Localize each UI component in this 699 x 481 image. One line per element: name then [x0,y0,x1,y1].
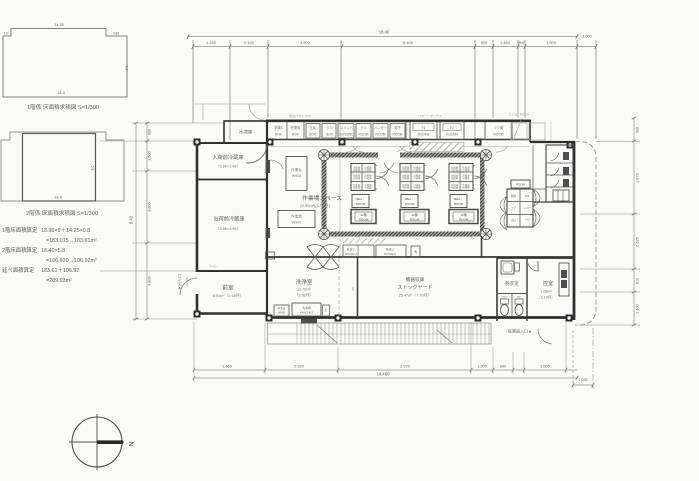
svg-text:C-UNIT ROOM: C-UNIT ROOM [509,113,530,117]
svg-text:1.460: 1.460 [222,364,233,369]
svg-text:1.026: 1.026 [579,378,588,382]
svg-text:1.500: 1.500 [546,40,557,45]
svg-text:1.500: 1.500 [148,151,152,161]
svg-text:ROOM: ROOM [494,133,504,137]
svg-text:冷蔵庫: 冷蔵庫 [462,186,470,190]
svg-text:BOX: BOX [326,133,334,137]
svg-text:900: 900 [636,127,640,133]
svg-text:8.40: 8.40 [129,215,134,224]
svg-text:90: 90 [351,287,355,291]
svg-text:洗浄機: 洗浄機 [302,305,311,310]
svg-text:冷蔵庫: 冷蔵庫 [451,168,459,172]
svg-text:W900: W900 [292,221,301,225]
svg-text:手洗台: 手洗台 [277,307,285,311]
svg-text:1階係 床面積求積図 S=1/300: 1階係 床面積求積図 S=1/300 [27,103,99,111]
svg-text:学服&: 学服& [274,125,283,130]
svg-text:(9.90m²)(3.00坪): (9.90m²)(3.00坪) [300,202,330,208]
svg-text:8.91m²（2.69坪）: 8.91m²（2.69坪） [213,293,244,298]
svg-text:=106.920→106.92m2: =106.920→106.92m2 [46,258,97,265]
svg-text:3.900: 3.900 [300,40,311,45]
svg-text:冷蔵庫: 冷蔵庫 [451,176,459,180]
svg-text:土足: 土足 [309,125,316,130]
svg-text:12番: 12番 [360,212,367,217]
svg-text:12番: 12番 [411,212,418,217]
svg-text:18.99×9＋14.25×0.8: 18.99×9＋14.25×0.8 [41,227,90,234]
svg-text:帽子: 帽子 [394,125,401,130]
svg-text:1.000: 1.000 [582,35,592,39]
svg-text:18.40: 18.40 [379,30,390,35]
svg-text:18.4: 18.4 [57,91,64,95]
svg-text:(W-90): (W-90) [185,277,189,286]
svg-text:シャワ: シャワ [523,206,531,210]
svg-text:900: 900 [148,129,152,135]
svg-text:脱衣室: 脱衣室 [505,280,519,287]
svg-text:25.47m²（7.70坪）: 25.47m²（7.70坪） [399,293,432,298]
svg-text:ストックヤード: ストックヤード [397,285,432,291]
svg-text:2階床面積算定: 2階床面積算定 [2,246,38,254]
svg-text:MEA・: MEA・ [405,197,415,201]
svg-text:作業用: 作業用 [291,125,301,130]
svg-text:クツ箱: クツ箱 [494,125,504,130]
svg-text:延べ面積算定: 延べ面積算定 [2,266,35,274]
svg-text:冷凍庫: 冷凍庫 [239,129,253,136]
svg-text:冷蔵庫: 冷蔵庫 [402,186,410,190]
svg-text:（2.19坪）: （2.19坪） [537,295,555,300]
svg-text:910: 910 [636,278,640,284]
svg-text:従業員入口▲: 従業員入口▲ [508,328,532,334]
svg-text:（3.56坪）: （3.56坪） [295,293,314,298]
svg-text:ROOM: ROOM [516,183,525,187]
svg-text:ROOM: ROOM [454,202,464,206]
svg-text:ROOM3: ROOM3 [418,133,430,137]
svg-text:ー室: ー室 [524,218,530,222]
svg-text:入荷前冷蔵庫: 入荷前冷蔵庫 [212,153,243,161]
svg-text:11.76m²: 11.76m² [297,288,311,292]
svg-text:断熱パネル t=50: 断熱パネル t=50 [289,113,311,118]
svg-text:エア: エア [511,206,517,210]
svg-text:冷蔵庫: 冷蔵庫 [451,186,459,190]
svg-text:手洗い: 手洗い [346,247,355,252]
svg-text:ROOM: ROOM [356,202,366,206]
svg-text:12番: 12番 [460,212,467,217]
svg-text:前室: 前室 [511,194,517,198]
svg-text:スリッパ: スリッパ [340,125,354,130]
svg-text:900: 900 [500,364,507,369]
svg-text:1.400: 1.400 [636,304,640,314]
svg-text:WC: WC [517,296,521,299]
svg-text:作業場スペース: 作業場スペース [302,194,342,202]
svg-text:BOX: BOX [309,133,317,137]
svg-text:ROOM: ROOM [405,202,415,206]
svg-text:=183.015→183.61m2: =183.015→183.61m2 [46,238,97,245]
svg-text:台: 台 [325,308,328,312]
svg-text:手洗い: 手洗い [385,247,394,252]
svg-text:前室: 前室 [222,284,234,292]
svg-text:18.4: 18.4 [54,196,61,200]
svg-text:BENCHES: BENCHES [300,311,313,315]
svg-text:ROOM: ROOM [393,133,403,137]
svg-text:冷蔵庫: 冷蔵庫 [462,168,470,172]
svg-text:W600: W600 [292,174,301,178]
svg-text:冷蔵庫: 冷蔵庫 [402,168,410,172]
svg-text:4.80: 4.80 [113,32,119,36]
svg-text:1.300: 1.300 [477,364,488,369]
svg-text:洗: 洗 [414,249,417,254]
svg-text:ハンガー: ハンガー [374,125,387,130]
svg-text:作業台: 作業台 [291,167,302,172]
svg-text:BOX: BOX [275,133,283,137]
svg-text:（3.96×1.98）: （3.96×1.98） [216,164,241,169]
svg-text:=289.93m2: =289.93m2 [46,278,72,285]
svg-text:ROOM 2: ROOM 2 [384,252,396,256]
svg-text:5.8: 5.8 [125,66,129,71]
svg-text:1.0: 1.0 [4,32,9,36]
svg-text:MEA・: MEA・ [454,197,464,201]
svg-text:冷蔵庫: 冷蔵庫 [364,186,372,190]
svg-text:▼出入口: ▼出入口 [176,274,182,290]
svg-text:1.240: 1.240 [206,40,217,45]
svg-text:BOX: BOX [292,133,300,137]
svg-text:1.460: 1.460 [500,40,511,45]
svg-text:1.500: 1.500 [540,364,551,369]
svg-text:ROOM: ROOM [376,133,386,137]
svg-text:A/S: A/S [525,194,530,198]
svg-text:機器収庫: 機器収庫 [406,276,425,283]
svg-text:作業台: 作業台 [291,214,302,219]
svg-text:6.400: 6.400 [403,40,414,45]
svg-text:冷蔵庫: 冷蔵庫 [353,186,361,190]
svg-text:ROOM: ROOM [410,218,420,222]
svg-text:WC: WC [503,296,507,299]
svg-text:冷蔵庫: 冷蔵庫 [353,168,361,172]
svg-text:冷蔵庫: 冷蔵庫 [364,168,372,172]
svg-text:2.100: 2.100 [244,40,255,45]
svg-text:冷蔵庫: 冷蔵庫 [402,176,410,180]
svg-text:冷蔵庫: 冷蔵庫 [353,176,361,180]
svg-text:3.600: 3.600 [148,202,152,212]
svg-text:2.625: 2.625 [636,237,640,247]
svg-text:F=90: F=90 [210,265,217,269]
svg-text:冷蔵庫: 冷蔵庫 [413,186,421,190]
svg-text:洗浄室: 洗浄室 [296,278,313,286]
svg-text:ROOM: ROOM [359,133,369,137]
svg-text:ROOM 1: ROOM 1 [345,252,357,256]
svg-text:3.800: 3.800 [148,276,152,286]
svg-text:F2: F2 [422,126,426,130]
svg-text:2.920: 2.920 [400,364,411,369]
svg-text:クツ: クツ [326,125,332,130]
svg-text:（3.96×4.95）: （3.96×4.95） [216,226,241,231]
svg-text:クツ: クツ [360,125,366,130]
svg-text:ROOM: ROOM [359,218,369,222]
svg-text:冷蔵庫: 冷蔵庫 [364,176,372,180]
svg-text:冷蔵庫: 冷蔵庫 [413,176,421,180]
svg-text:W900: W900 [278,311,286,315]
svg-text:F2: F2 [450,126,454,130]
svg-text:出荷前冷蔵庫: 出荷前冷蔵庫 [213,215,244,223]
svg-text:14.460: 14.460 [377,372,390,377]
svg-text:リターンボックス: リターンボックス [418,113,442,118]
svg-text:2階係 床面積求積図 S=1/300: 2階係 床面積求積図 S=1/300 [26,209,98,217]
svg-text:冷蔵庫: 冷蔵庫 [462,176,470,180]
svg-text:BOX&WC: BOX&WC [339,133,354,137]
svg-text:900: 900 [481,40,488,45]
svg-text:出口: 出口 [511,218,517,222]
svg-text:ROOM: ROOM [459,218,469,222]
svg-text:控室: 控室 [543,280,553,287]
svg-text:1.68m²: 1.68m² [540,290,552,294]
svg-text:2.920: 2.920 [294,364,305,369]
svg-text:冷蔵庫: 冷蔵庫 [413,168,421,172]
svg-text:5.8: 5.8 [91,166,95,171]
svg-text:N: N [127,442,134,447]
svg-text:183.61＋106.92: 183.61＋106.92 [41,267,79,274]
svg-text:1.870: 1.870 [636,173,640,183]
svg-text:1階床面積算定: 1階床面積算定 [2,226,38,234]
svg-text:900: 900 [518,40,525,45]
svg-text:ROOM4: ROOM4 [446,133,458,137]
svg-text:MEA・: MEA・ [356,197,366,201]
svg-text:14.25: 14.25 [54,23,64,27]
svg-text:18.40×5.8: 18.40×5.8 [41,248,65,254]
